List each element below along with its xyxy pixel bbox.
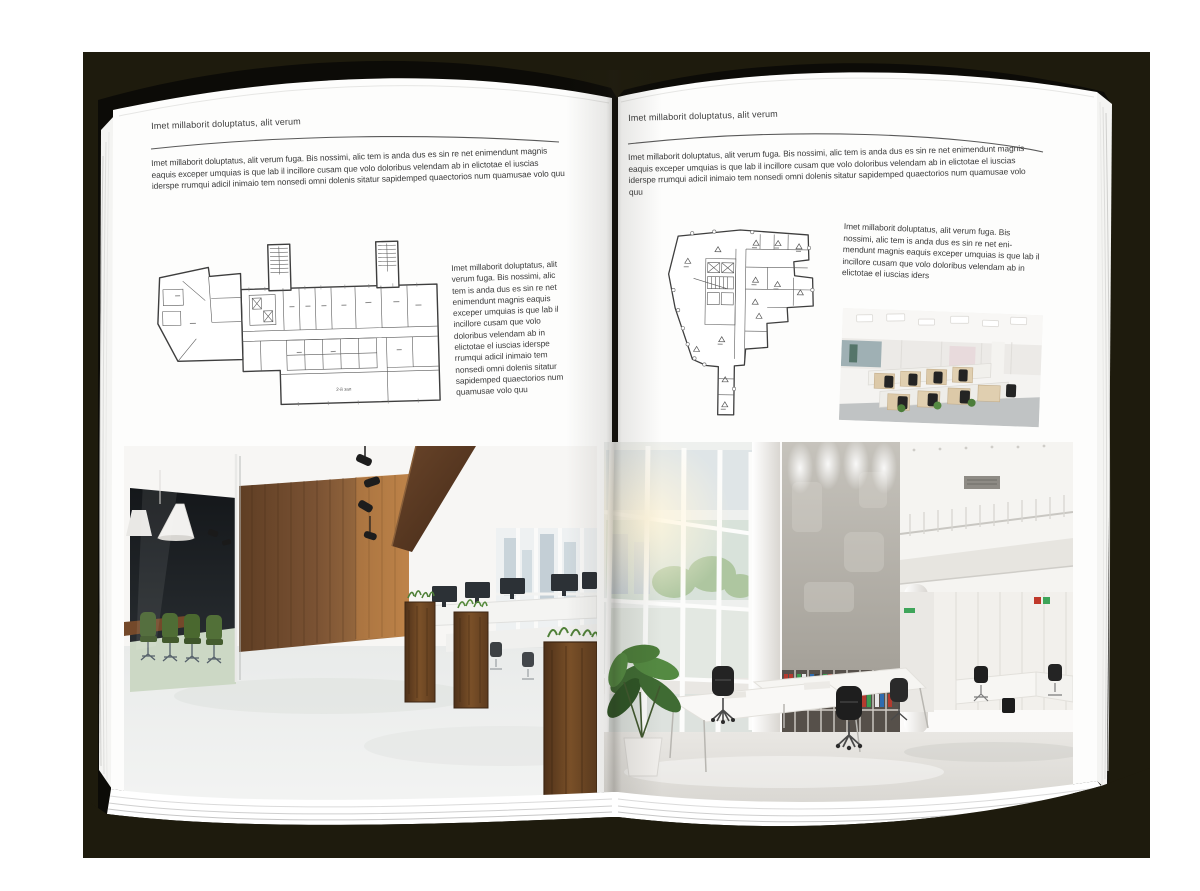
exit-sign <box>1043 597 1050 604</box>
first-aid-sign <box>1034 597 1041 604</box>
right-page-photo-white-atrium <box>604 442 1073 815</box>
right-page-header: Imet millaborit doluptatus, alit verum <box>628 109 778 123</box>
right-page-intro-paragraph: Imet millaborit doluptatus, alit verum f… <box>628 143 1033 199</box>
white-column <box>752 442 780 774</box>
right-page-text-block: Imet millaborit doluptatus, alit verum f… <box>842 221 1041 286</box>
floor-plan-right-drawing <box>646 218 837 423</box>
magazine-spread-mockup: Imet millaborit doluptatus, alit verum I… <box>0 0 1200 891</box>
waste-bin <box>1002 698 1015 713</box>
mezzanine-balcony <box>900 442 1073 592</box>
photo-white-atrium-illustration <box>604 442 1073 815</box>
photo-small-office-illustration <box>839 308 1043 427</box>
concrete-wall <box>782 442 900 670</box>
corridor-exit-sign <box>904 608 915 613</box>
right-page-small-photo <box>839 308 1043 427</box>
right-floor-plan-figure <box>646 218 837 423</box>
right-page-content: Imet millaborit doluptatus, alit verum I… <box>0 0 1200 891</box>
